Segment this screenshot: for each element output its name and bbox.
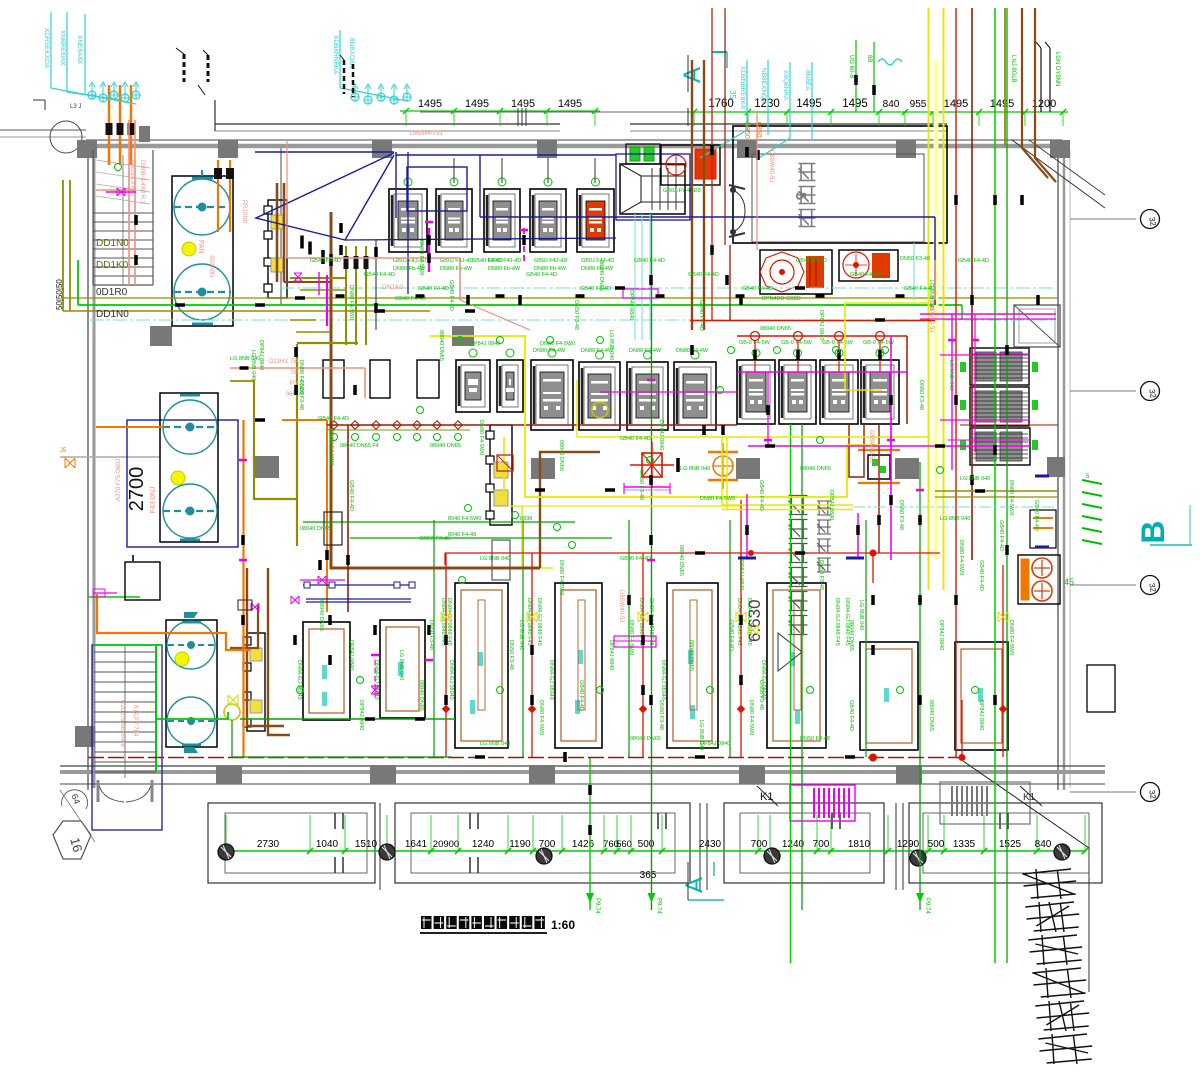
svg-text:GB40 F4-4D: GB40 F4-4D <box>418 286 449 292</box>
svg-text:D850: D850 <box>743 122 750 139</box>
svg-text:GB40 F4-4D: GB40 F4-4D <box>578 680 584 711</box>
svg-text:D21HX 78L: D21HX 78L <box>269 359 301 365</box>
svg-text:0850: 0850 <box>755 122 762 138</box>
svg-text:08040 DN65: 08040 DN65 <box>430 443 461 449</box>
svg-text:NB8EXNQA: NB8EXNQA <box>760 68 767 104</box>
svg-text:1290: 1290 <box>897 839 920 850</box>
svg-text:1510: 1510 <box>355 839 378 850</box>
svg-text:GB0J-FY-4BD0: GB0J-FY-4BD0 <box>663 188 701 194</box>
svg-text:08040 DN65: 08040 DN65 <box>438 330 444 361</box>
svg-text:08040 DN65: 08040 DN65 <box>300 526 331 532</box>
svg-text:DN50 F3-48: DN50 F3-48 <box>918 380 924 410</box>
svg-text:DD1N0: DD1N0 <box>96 238 129 249</box>
svg-text:2700: 2700 <box>126 467 148 512</box>
svg-text:D8SW40-5J: D8SW40-5J <box>928 300 934 332</box>
svg-text:DN80 F4-5W0: DN80 F4-5W0 <box>328 430 334 465</box>
svg-text:1240: 1240 <box>472 839 495 850</box>
svg-text:50|50|50: 50|50|50 <box>55 279 64 310</box>
svg-text:GB40 F4-4D: GB40 F4-4D <box>472 258 503 264</box>
svg-text:DN50 F3-48: DN50 F3-48 <box>898 500 904 530</box>
svg-text:1495: 1495 <box>465 98 489 110</box>
svg-text:500: 500 <box>638 839 655 850</box>
svg-text:LG 8NB 040: LG 8NB 040 <box>960 476 990 482</box>
svg-text:700: 700 <box>751 839 768 850</box>
svg-text:DP84J 0840: DP84J 0840 <box>348 640 354 670</box>
svg-text:DN80 F4-5W0: DN80 F4-5W0 <box>558 560 564 595</box>
svg-text:0898: 0898 <box>520 516 532 522</box>
svg-text:XNE8A8X: XNE8A8X <box>76 35 83 65</box>
svg-text:08040 DN65: 08040 DN65 <box>678 545 684 576</box>
svg-text:X8Q8NRA: X8Q8NRA <box>782 70 789 101</box>
svg-text:1495: 1495 <box>842 98 868 110</box>
svg-text:08040 DN65: 08040 DN65 <box>558 440 564 471</box>
svg-text:LG 8NB 040: LG 8NB 040 <box>680 466 710 472</box>
svg-text:DN50 F3-48: DN50 F3-48 <box>800 736 830 742</box>
svg-text:S00A0D: S00A0D <box>208 255 214 278</box>
svg-text:GB0J F4J-4D: GB0J F4J-4D <box>534 258 567 264</box>
svg-text:DN80 F4-5W0: DN80 F4-5W0 <box>628 620 634 655</box>
svg-text:DN80 F4-4W: DN80 F4-4W <box>629 348 662 354</box>
svg-text:1495: 1495 <box>558 98 582 110</box>
svg-text:560: 560 <box>616 839 632 850</box>
svg-text:8040 F4-48: 8040 F4-48 <box>448 532 476 538</box>
svg-text:365: 365 <box>640 870 657 881</box>
svg-text:LG 8NB 040: LG 8NB 040 <box>230 356 260 362</box>
svg-text:P9.74: P9.74 <box>656 898 662 914</box>
svg-text:FAN: FAN <box>197 240 204 254</box>
svg-text:L3 J: L3 J <box>70 104 81 110</box>
svg-text:LG 8NB 040: LG 8NB 040 <box>608 330 614 360</box>
svg-text:DN50 F3-48: DN50 F3-48 <box>758 680 764 710</box>
svg-text:DN80 F4-5W0: DN80 F4-5W0 <box>538 700 544 735</box>
svg-text:GB40 F4-4D: GB40 F4-4D <box>634 258 665 264</box>
svg-text:1426: 1426 <box>572 839 595 850</box>
svg-text:08040 DN65: 08040 DN65 <box>688 640 694 671</box>
svg-text:A: A <box>681 877 708 893</box>
svg-text:DP84J 0840: DP84J 0840 <box>608 640 614 670</box>
svg-text:DP84J 0840: DP84J 0840 <box>938 620 944 650</box>
svg-text:DP84J 0840: DP84J 0840 <box>470 341 500 347</box>
svg-text:955: 955 <box>910 99 927 110</box>
svg-text:GB40 F4-4D: GB40 F4-4D <box>348 480 354 511</box>
svg-text:DP84J 0840: DP84J 0840 <box>738 560 744 590</box>
svg-text:B: B <box>1135 520 1171 543</box>
svg-text:08040 DN65: 08040 DN65 <box>630 736 661 742</box>
svg-text:DN1K0: DN1K0 <box>382 284 403 291</box>
svg-text:LG 8NB 040: LG 8NB 040 <box>518 620 524 650</box>
svg-text:DN50 F3-48: DN50 F3-48 <box>818 560 824 590</box>
svg-text:D8SW40-5J: D8SW40-5J <box>618 590 624 622</box>
svg-text:1190: 1190 <box>509 839 531 850</box>
svg-text:20900: 20900 <box>433 839 459 850</box>
svg-text:DN80 Fb-4W: DN80 Fb-4W <box>581 266 614 272</box>
svg-text:GB40 F4-4D: GB40 F4-4D <box>904 286 935 292</box>
svg-text:DN04-GJ 08040: DN04-GJ 08040 <box>448 660 454 700</box>
svg-text:GB40 F4-4D: GB40 F4-4D <box>310 258 341 264</box>
svg-text:LG 8NB 040: LG 8NB 040 <box>480 556 510 562</box>
svg-text:1495: 1495 <box>418 98 442 110</box>
svg-text:5: 5 <box>792 192 809 200</box>
svg-text:2730: 2730 <box>257 839 280 850</box>
svg-text:F43-0NJ: F43-0NJ <box>150 487 157 514</box>
svg-text:K1: K1 <box>1023 792 1036 803</box>
svg-text:8N8EA: 8N8EA <box>804 70 811 91</box>
svg-text:LGN DY8NN: LGN DY8NN <box>1054 52 1060 86</box>
svg-text:XNBRENAX: XNBRENAX <box>59 30 66 66</box>
svg-text:1040: 1040 <box>316 839 339 850</box>
svg-text:DN80 Fb-4W: DN80 Fb-4W <box>440 266 473 272</box>
svg-text:GB40 F4-4D: GB40 F4-4D <box>688 272 719 278</box>
svg-text:XD8NBRE8KA: XD8NBRE8KA <box>739 66 746 110</box>
svg-text:DN80 F4-5W0: DN80 F4-5W0 <box>748 700 754 735</box>
svg-text:DN50 F3-48: DN50 F3-48 <box>428 620 434 650</box>
svg-text:08040 DN65: 08040 DN65 <box>318 600 324 631</box>
svg-text:1495: 1495 <box>511 98 535 110</box>
svg-text:DN04-GJ 08040: DN04-GJ 08040 <box>548 660 554 700</box>
svg-text:GB40 F4-4D: GB40 F4-4D <box>620 436 651 442</box>
svg-text:08040 DN65 F4: 08040 DN65 F4 <box>340 443 379 449</box>
svg-text:DN04-GJ 0840 F45: DN04-GJ 0840 F45 <box>834 598 840 646</box>
svg-text:DN50 F3-48: DN50 F3-48 <box>638 470 644 500</box>
svg-text:0D1R0: 0D1R0 <box>96 287 128 298</box>
svg-text:500: 500 <box>928 839 945 850</box>
svg-text:DP84J 0840: DP84J 0840 <box>628 290 634 320</box>
svg-text:DPN4BD GB8D: DPN4BD GB8D <box>762 296 801 302</box>
svg-text:8 8LPY 784: 8 8LPY 784 <box>132 705 138 737</box>
svg-text:GB40 F4-4D: GB40 F4-4D <box>758 480 764 511</box>
svg-text:J5: J5 <box>60 448 67 454</box>
svg-text:700: 700 <box>813 839 830 850</box>
svg-text:DN50 F3-48: DN50 F3-48 <box>420 536 450 542</box>
svg-text:DN80 F4-5W0: DN80 F4-5W0 <box>700 496 735 502</box>
svg-text:LG 8NB 040: LG 8NB 040 <box>948 360 954 390</box>
svg-text:P9.74: P9.74 <box>594 898 600 914</box>
svg-text:DN80 F4-5W0: DN80 F4-5W0 <box>348 285 354 320</box>
svg-text:D8SW40-5J: D8SW40-5J <box>410 131 442 137</box>
svg-text:35: 35 <box>728 90 737 99</box>
svg-text:GB40 F4-4D: GB40 F4-4D <box>698 300 704 331</box>
svg-text:GB40 F4-4D: GB40 F4-4D <box>848 700 854 731</box>
svg-text:GB40 F4-4D: GB40 F4-4D <box>526 272 557 278</box>
svg-text:8B: 8B <box>866 55 872 62</box>
svg-text:1495: 1495 <box>990 98 1014 110</box>
svg-text:GB40 F4-4D: GB40 F4-4D <box>620 556 651 562</box>
svg-text:GB40 F4-4D: GB40 F4-4D <box>850 272 881 278</box>
svg-text:XDRSEKXDA: XDRSEKXDA <box>43 28 50 69</box>
svg-text:08040 DN65: 08040 DN65 <box>418 680 424 711</box>
svg-text:08040 DN65: 08040 DN65 <box>800 466 831 472</box>
svg-text:P9.74: P9.74 <box>924 898 930 914</box>
svg-text:DP84J 0840: DP84J 0840 <box>978 700 984 730</box>
svg-text:LG 8NB 040: LG 8NB 040 <box>858 600 864 630</box>
svg-text:DD1K0: DD1K0 <box>96 260 129 271</box>
svg-text:840: 840 <box>1035 839 1052 850</box>
svg-text:GB0J F4J-4D: GB0J F4J-4D <box>440 258 473 264</box>
svg-text:DN08-3.4X0 R.3: DN08-3.4X0 R.3 <box>139 160 145 205</box>
svg-text:DN50 F3-48: DN50 F3-48 <box>508 640 514 670</box>
svg-text:LG 8NB 040: LG 8NB 040 <box>940 516 970 522</box>
svg-text:8040 F4-5W0: 8040 F4-5W0 <box>448 516 481 522</box>
svg-text:DN04-GJ 08040: DN04-GJ 08040 <box>660 660 666 700</box>
svg-text:LG 8NB 040: LG 8NB 040 <box>480 741 510 747</box>
svg-text:DD1N0: DD1N0 <box>96 309 129 320</box>
svg-text:DN80 F4-5W0: DN80 F4-5W0 <box>418 240 424 275</box>
svg-text:DN80 F4-5W0: DN80 F4-5W0 <box>478 420 484 455</box>
svg-text:GB40 F4-4D: GB40 F4-4D <box>728 620 734 651</box>
svg-text:GB40 F4-4D: GB40 F4-4D <box>1033 500 1039 531</box>
svg-text:PRJSN0: PRJSN0 <box>241 200 247 224</box>
svg-text:2430: 2430 <box>699 839 722 850</box>
svg-text:GB40 F4-4D: GB40 F4-4D <box>796 258 827 264</box>
svg-text:DP84J 0840: DP84J 0840 <box>818 310 824 340</box>
svg-text:DN80 F4-4W: DN80 F4-4W <box>533 348 566 354</box>
svg-text:1641: 1641 <box>405 839 428 850</box>
svg-text:XDB8RNEKA: XDB8RNEKA <box>332 35 339 75</box>
svg-text:840: 840 <box>883 99 900 110</box>
svg-text:D8SW40-5J: D8SW40-5J <box>868 430 874 462</box>
svg-text:K1: K1 <box>760 791 773 803</box>
svg-text:D8SW40-5J: D8SW40-5J <box>768 150 774 182</box>
svg-text:GB40 F4-4D: GB40 F4-4D <box>998 520 1004 551</box>
svg-text:GB40 F4-4D: GB40 F4-4D <box>978 560 984 591</box>
svg-text:GB40 F4-4D: GB40 F4-4D <box>318 416 349 422</box>
svg-text:1335: 1335 <box>953 839 976 850</box>
svg-text:DN50 F3-48: DN50 F3-48 <box>298 380 304 410</box>
svg-text:DN80 F4-5W0: DN80 F4-5W0 <box>1008 620 1014 655</box>
svg-text:AJ70Y75-060J: AJ70Y75-060J <box>115 459 122 502</box>
svg-text:DN50 F3-48: DN50 F3-48 <box>900 256 930 262</box>
svg-text:DN50 F3-48: DN50 F3-48 <box>573 300 579 330</box>
svg-text:GB40 F4-4D: GB40 F4-4D <box>958 258 989 264</box>
svg-text:LNJ 8GLB: LNJ 8GLB <box>1010 55 1016 83</box>
svg-text:08040 DN65: 08040 DN65 <box>928 700 934 731</box>
svg-text:DP84J 0840: DP84J 0840 <box>828 490 834 520</box>
svg-text:DP84J 0840: DP84J 0840 <box>658 420 664 450</box>
svg-text:LG 8NB 040: LG 8NB 040 <box>250 350 256 380</box>
svg-text:1240: 1240 <box>782 839 805 850</box>
svg-text:DP84J 0840: DP84J 0840 <box>700 741 730 747</box>
svg-text:08040 DN65: 08040 DN65 <box>848 620 854 651</box>
svg-text:C2DJ?9 8828048: C2DJ?9 8828048 <box>119 700 125 747</box>
svg-text:DN80 F4-5W0: DN80 F4-5W0 <box>958 540 964 575</box>
svg-text:LG 8NB 040: LG 8NB 040 <box>398 650 404 680</box>
svg-text:DP84J 0840: DP84J 0840 <box>358 700 364 730</box>
svg-text:DN50 F3-48: DN50 F3-48 <box>658 700 664 730</box>
svg-text:6.630: 6.630 <box>745 599 764 642</box>
svg-text:1:60: 1:60 <box>551 918 575 932</box>
svg-text:1495: 1495 <box>796 98 822 110</box>
svg-text:UG 60-B: UG 60-B <box>848 55 854 78</box>
svg-text:GB40 F4-4D: GB40 F4-4D <box>580 286 611 292</box>
svg-text:DN80 F4-5W0: DN80 F4-5W0 <box>1008 480 1014 515</box>
svg-text:GB0J F4J-4D: GB0J F4J-4D <box>581 258 614 264</box>
svg-text:1810: 1810 <box>848 839 871 850</box>
svg-text:1525: 1525 <box>999 839 1022 850</box>
svg-text:DN80 Fb-4W: DN80 Fb-4W <box>488 266 521 272</box>
svg-text:GB40 F4-4D: GB40 F4-4D <box>364 272 395 278</box>
svg-text:08040 DN65: 08040 DN65 <box>760 326 791 332</box>
svg-text:GB40 F4-4D: GB40 F4-4D <box>742 286 773 292</box>
svg-text:DN80 F4-5W0: DN80 F4-5W0 <box>540 341 575 347</box>
svg-text:GB40 F4-4D: GB40 F4-4D <box>448 280 454 311</box>
